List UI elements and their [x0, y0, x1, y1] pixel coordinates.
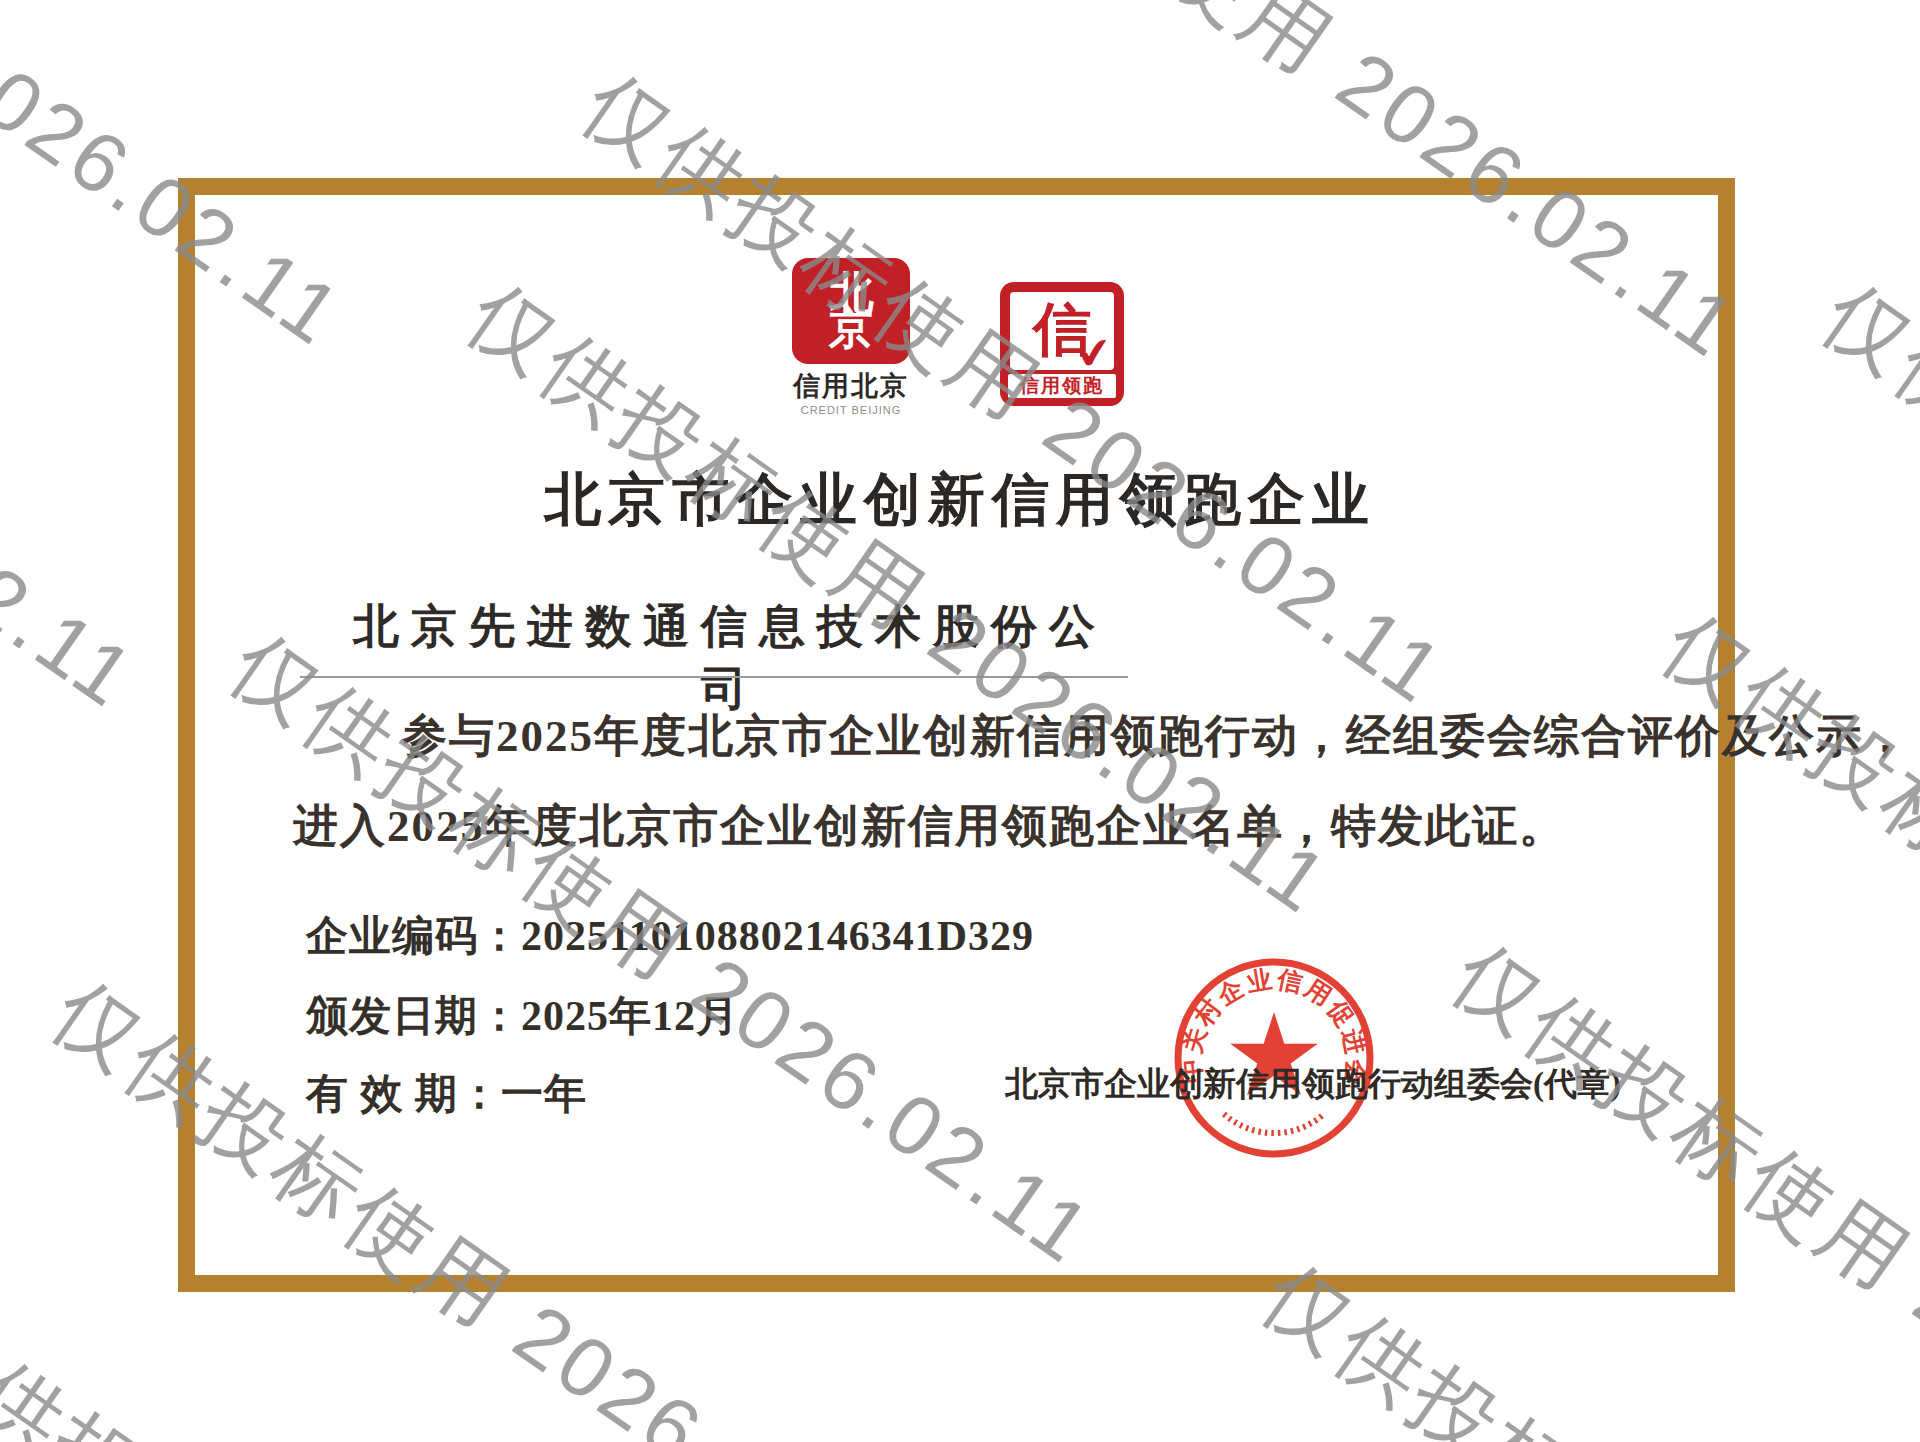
issuer-name: 北京市企业创新信用领跑行动组委会(代章): [1005, 1062, 1705, 1107]
credit-beijing-caption-en: CREDIT BEIJING: [792, 404, 910, 416]
body-paragraph-line2: 进入2025年度北京市企业创新信用领跑企业名单，特发此证。: [293, 796, 1593, 856]
body-paragraph-line1: 参与2025年度北京市企业创新信用领跑行动，经组委会综合评价及公示，: [402, 706, 1622, 766]
certificate-title: 北京市企业创新信用领跑企业: [0, 462, 1920, 539]
seal-code-marks: [1224, 1114, 1324, 1133]
credit-beijing-logo: 北 京 信用北京 CREDIT BEIJING: [792, 258, 910, 416]
credit-leader-inner: 信 ✔: [1010, 292, 1114, 370]
enterprise-code-label: 企业编码：: [306, 913, 521, 959]
validity-row: 有 效 期：一年: [306, 1066, 587, 1122]
official-red-seal: 中关村企业信用促进会: [1168, 952, 1380, 1164]
company-name: 北京先进数通信息技术股份公司: [330, 596, 1130, 720]
company-underline: [300, 676, 1128, 678]
watermark-text: 仅供投标使用 2026.02.11: [0, 1295, 781, 1442]
credit-leader-seal-logo: 信 ✔ 信用领跑: [1000, 282, 1124, 406]
checkmark-icon: ✔: [1074, 327, 1114, 370]
credit-beijing-caption-cn: 信用北京: [792, 368, 910, 404]
issue-date-row: 颁发日期：2025年12月: [306, 988, 739, 1044]
enterprise-code-row: 企业编码：2025110108802146341D329: [306, 908, 1034, 964]
credit-leader-band-text: 信用领跑: [1008, 374, 1116, 398]
validity-value: 一年: [501, 1071, 587, 1117]
certificate-page: 北 京 信用北京 CREDIT BEIJING 信 ✔ 信用领跑 北京市企业创新…: [0, 0, 1920, 1442]
issue-date-label: 颁发日期：: [306, 993, 521, 1039]
issue-date-value: 2025年12月: [521, 993, 739, 1039]
emblem-bottom-glyph: 京: [829, 307, 873, 349]
seal-graphic: 中关村企业信用促进会: [1168, 952, 1380, 1164]
enterprise-code-value: 2025110108802146341D329: [521, 913, 1034, 959]
credit-beijing-emblem-icon: 北 京: [792, 258, 910, 364]
logo-row: 北 京 信用北京 CREDIT BEIJING 信 ✔ 信用领跑: [0, 252, 1920, 422]
validity-label: 有 效 期：: [306, 1071, 501, 1117]
